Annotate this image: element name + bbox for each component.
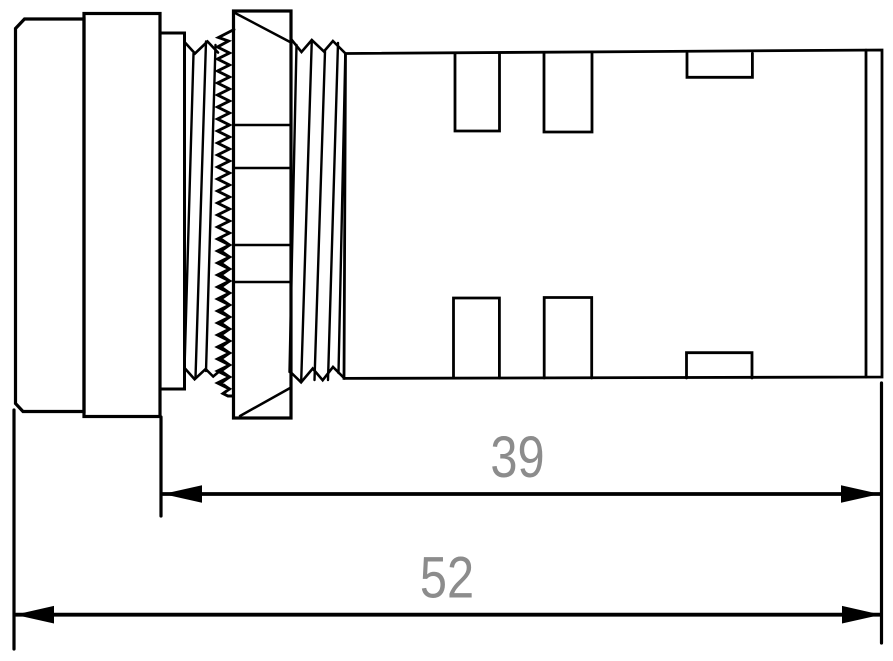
svg-text:52: 52	[420, 547, 474, 611]
svg-text:39: 39	[490, 426, 544, 490]
